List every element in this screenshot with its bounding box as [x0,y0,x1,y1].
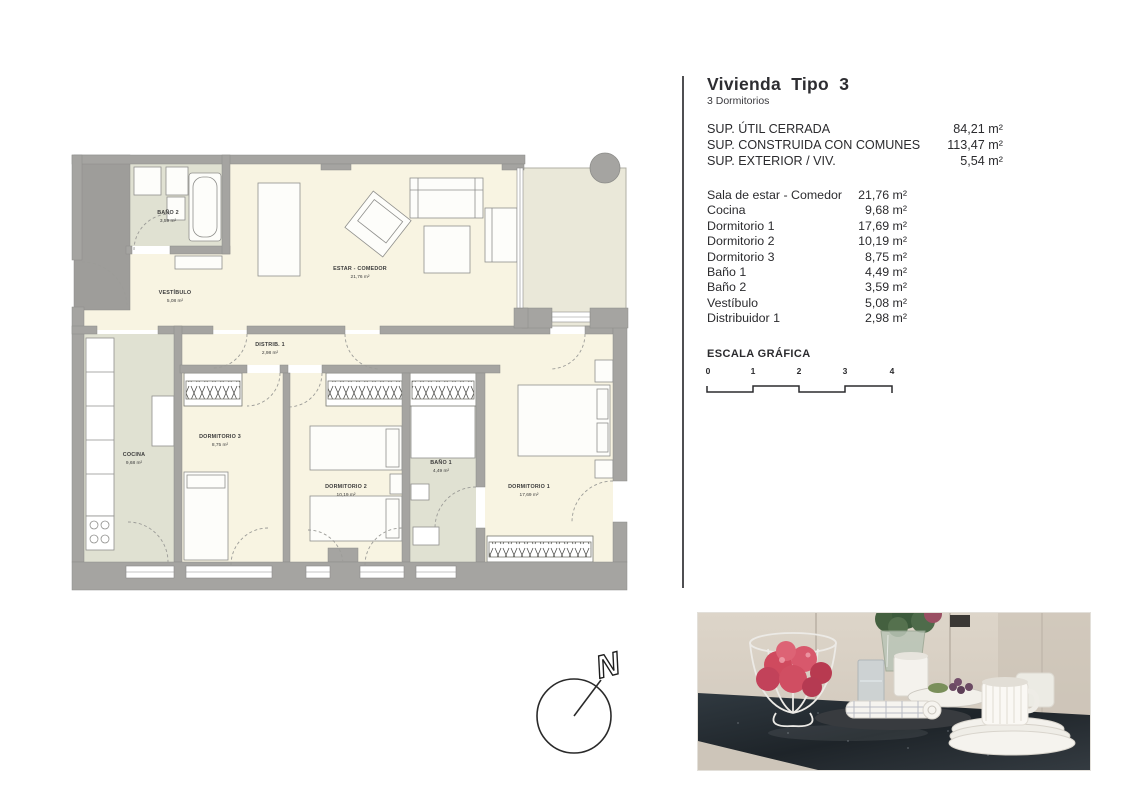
room-label: Dormitorio 2 [707,234,774,249]
svg-text:BAÑO 2: BAÑO 2 [157,209,179,216]
kitchen-photo-illustration [698,613,1090,770]
svg-text:DISTRIB. 1: DISTRIB. 1 [255,342,285,348]
svg-text:BAÑO 1: BAÑO 1 [430,459,452,466]
list-item: Dormitorio 3 8,75 m² [707,250,907,265]
toilet [411,484,429,500]
north-letter: N [592,645,624,686]
shower [411,404,475,458]
stove [86,516,114,550]
table-row: SUP. CONSTRUIDA CON COMUNES 113,47 m² [707,137,1003,153]
room-label: Vestíbulo [707,296,758,311]
surface-value: 113,47 m² [947,137,1003,153]
room-value: 4,49 m² [865,265,907,280]
service-shaft [74,155,130,310]
hall-floor [180,334,500,365]
table-row: SUP. ÚTIL CERRADA 84,21 m² [707,121,1003,137]
surface-summary: SUP. ÚTIL CERRADA 84,21 m² SUP. CONSTRUI… [707,121,1003,170]
sofa [410,178,483,218]
room-value: 10,19 m² [858,234,907,249]
svg-text:2: 2 [797,366,802,376]
list-item: Cocina 9,68 m² [707,203,907,218]
svg-text:ESTAR - COMEDOR: ESTAR - COMEDOR [333,266,387,272]
terrace-pillar [590,153,620,183]
surface-label: SUP. ÚTIL CERRADA [707,121,830,137]
room-value: 8,75 m² [865,250,907,265]
room-value: 17,69 m² [858,219,907,234]
north-compass: N [528,640,638,765]
svg-text:DORMITORIO 1: DORMITORIO 1 [508,484,550,490]
svg-text:0: 0 [706,366,711,376]
svg-text:21,76 m²: 21,76 m² [351,274,370,280]
list-item: Distribuidor 1 2,98 m² [707,311,907,326]
svg-text:3,59 m²: 3,59 m² [160,218,177,224]
svg-text:17,69 m²: 17,69 m² [520,492,539,498]
terrace-floor [522,168,626,326]
room-value: 5,08 m² [865,296,907,311]
scale-title: ESCALA GRÁFICA [707,348,811,360]
svg-text:DORMITORIO 2: DORMITORIO 2 [325,484,367,490]
room-list: Sala de estar - Comedor 21,76 m² Cocina … [707,188,907,327]
room-label: Sala de estar - Comedor [707,188,842,203]
surface-label: SUP. CONSTRUIDA CON COMUNES [707,137,920,153]
table-row: SUP. EXTERIOR / VIV. 5,54 m² [707,153,1003,169]
page-title: Vivienda Tipo 3 [707,74,849,95]
nightstand [595,460,613,478]
svg-text:5,08 m²: 5,08 m² [167,298,184,304]
svg-text:9,68 m²: 9,68 m² [126,460,143,466]
vertical-divider [682,76,684,588]
list-item: Baño 2 3,59 m² [707,280,907,295]
brochure-page: BAÑO 2 3,59 m² VESTÍBULO 5,08 m² ESTAR -… [0,0,1133,800]
svg-text:VESTÍBULO: VESTÍBULO [159,288,192,296]
console-table [175,256,222,269]
nightstand [595,360,613,382]
sink [413,527,439,545]
drinking-glass [858,660,884,703]
nightstand [390,474,403,494]
room-value: 3,59 m² [865,280,907,295]
page-subtitle: 3 Dormitorios [707,95,769,107]
surface-value: 5,54 m² [960,153,1003,169]
room-label: Cocina [707,203,746,218]
svg-text:4: 4 [890,366,895,376]
kitchen-photo [697,612,1091,771]
dining-table [258,183,300,276]
list-item: Dormitorio 2 10,19 m² [707,234,907,249]
list-item: Dormitorio 1 17,69 m² [707,219,907,234]
room-label: Dormitorio 1 [707,219,774,234]
list-item: Sala de estar - Comedor 21,76 m² [707,188,907,203]
svg-text:3: 3 [843,366,848,376]
svg-text:8,75 m²: 8,75 m² [212,442,229,448]
room-label: Distribuidor 1 [707,311,780,326]
north-arrow [574,680,601,716]
list-item: Baño 1 4,49 m² [707,265,907,280]
svg-text:1: 1 [751,366,756,376]
room-label: Baño 1 [707,265,746,280]
scale-bar-line [707,386,892,393]
room-value: 9,68 m² [865,203,907,218]
surface-value: 84,21 m² [953,121,1003,137]
scale-bar: 0 1 2 3 4 [704,364,904,400]
kitchen-island [152,396,174,446]
surface-label: SUP. EXTERIOR / VIV. [707,153,836,169]
armchair [485,208,517,262]
coffee-table [424,226,470,273]
floor-plan: BAÑO 2 3,59 m² VESTÍBULO 5,08 m² ESTAR -… [70,150,636,594]
room-value: 21,76 m² [858,188,907,203]
svg-text:4,49 m²: 4,49 m² [433,468,450,474]
room-value: 2,98 m² [865,311,907,326]
svg-text:COCINA: COCINA [123,452,145,458]
bed-double-1 [518,385,610,456]
svg-text:2,98 m²: 2,98 m² [262,350,279,356]
room-label: Baño 2 [707,280,746,295]
wall-fixture [950,615,970,627]
svg-text:DORMITORIO 3: DORMITORIO 3 [199,434,241,440]
svg-text:10,19 m²: 10,19 m² [337,492,356,498]
list-item: Vestíbulo 5,08 m² [707,296,907,311]
room-label: Dormitorio 3 [707,250,774,265]
scale-ticks: 0 1 2 3 4 [706,366,895,376]
